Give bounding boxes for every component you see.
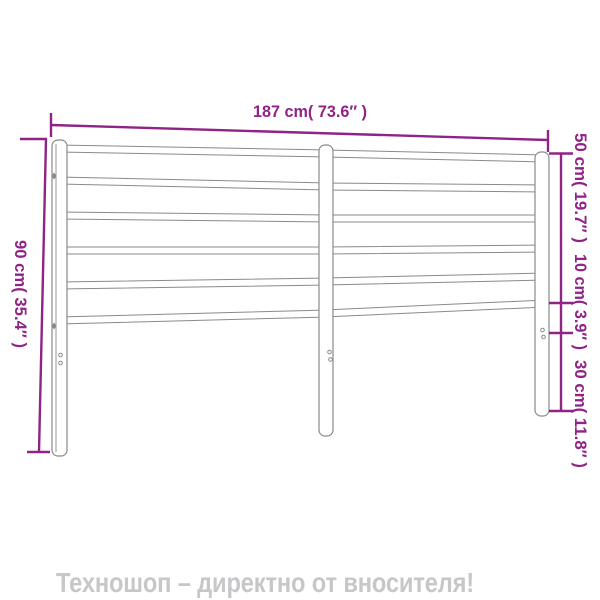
width-dim-line (51, 125, 548, 140)
store-watermark-text: Техношоп – директно от вносителя! (56, 567, 474, 598)
rail-5-right (324, 273, 546, 285)
left-post (52, 140, 67, 456)
left-post-bolt-hole-bottom (59, 361, 63, 365)
rail-6-right (324, 300, 546, 317)
rail-3-right (324, 215, 546, 222)
height-dim-line (39, 139, 46, 452)
rail-3-left (58, 212, 329, 222)
diagram-canvas: 187 cm( 73.6″ ) 90 cm( 35.4″ ) 50 cm( 19… (0, 0, 600, 600)
left-post-bolt-hole-top (59, 353, 63, 357)
headboard-rails-right (324, 150, 546, 317)
height-dimension-label: 90 cm( 35.4″ ) (11, 240, 30, 348)
rail-5-left (58, 278, 329, 289)
right-post-bolt-hole-top (541, 328, 545, 332)
rail-4-left (58, 247, 329, 254)
right-dimension-label-10: 10 cm( 3.9″ ) (571, 254, 590, 350)
middle-post (319, 145, 333, 436)
rail-2-right (324, 183, 546, 192)
headboard-rails-left (58, 145, 329, 324)
right-post-bolt-hole-bottom (542, 335, 546, 339)
right-dimension-label-30: 30 cm( 11.8″ ) (571, 360, 590, 468)
right-post (535, 152, 549, 416)
rail-6-left (58, 310, 329, 324)
product-dimension-diagram: 187 cm( 73.6″ ) 90 cm( 35.4″ ) 50 cm( 19… (0, 0, 600, 600)
rail-4-right (324, 245, 546, 254)
middle-post-bolt-hole-top (328, 350, 332, 354)
rail-top-right (324, 150, 546, 162)
right-dimension-label-50: 50 cm( 19.7″ ) (571, 133, 590, 243)
width-dimension-label: 187 cm( 73.6″ ) (253, 102, 367, 121)
middle-post-bolt-hole-bottom (329, 358, 333, 362)
rail-top-left (58, 145, 329, 157)
rail-2-left (58, 177, 329, 190)
